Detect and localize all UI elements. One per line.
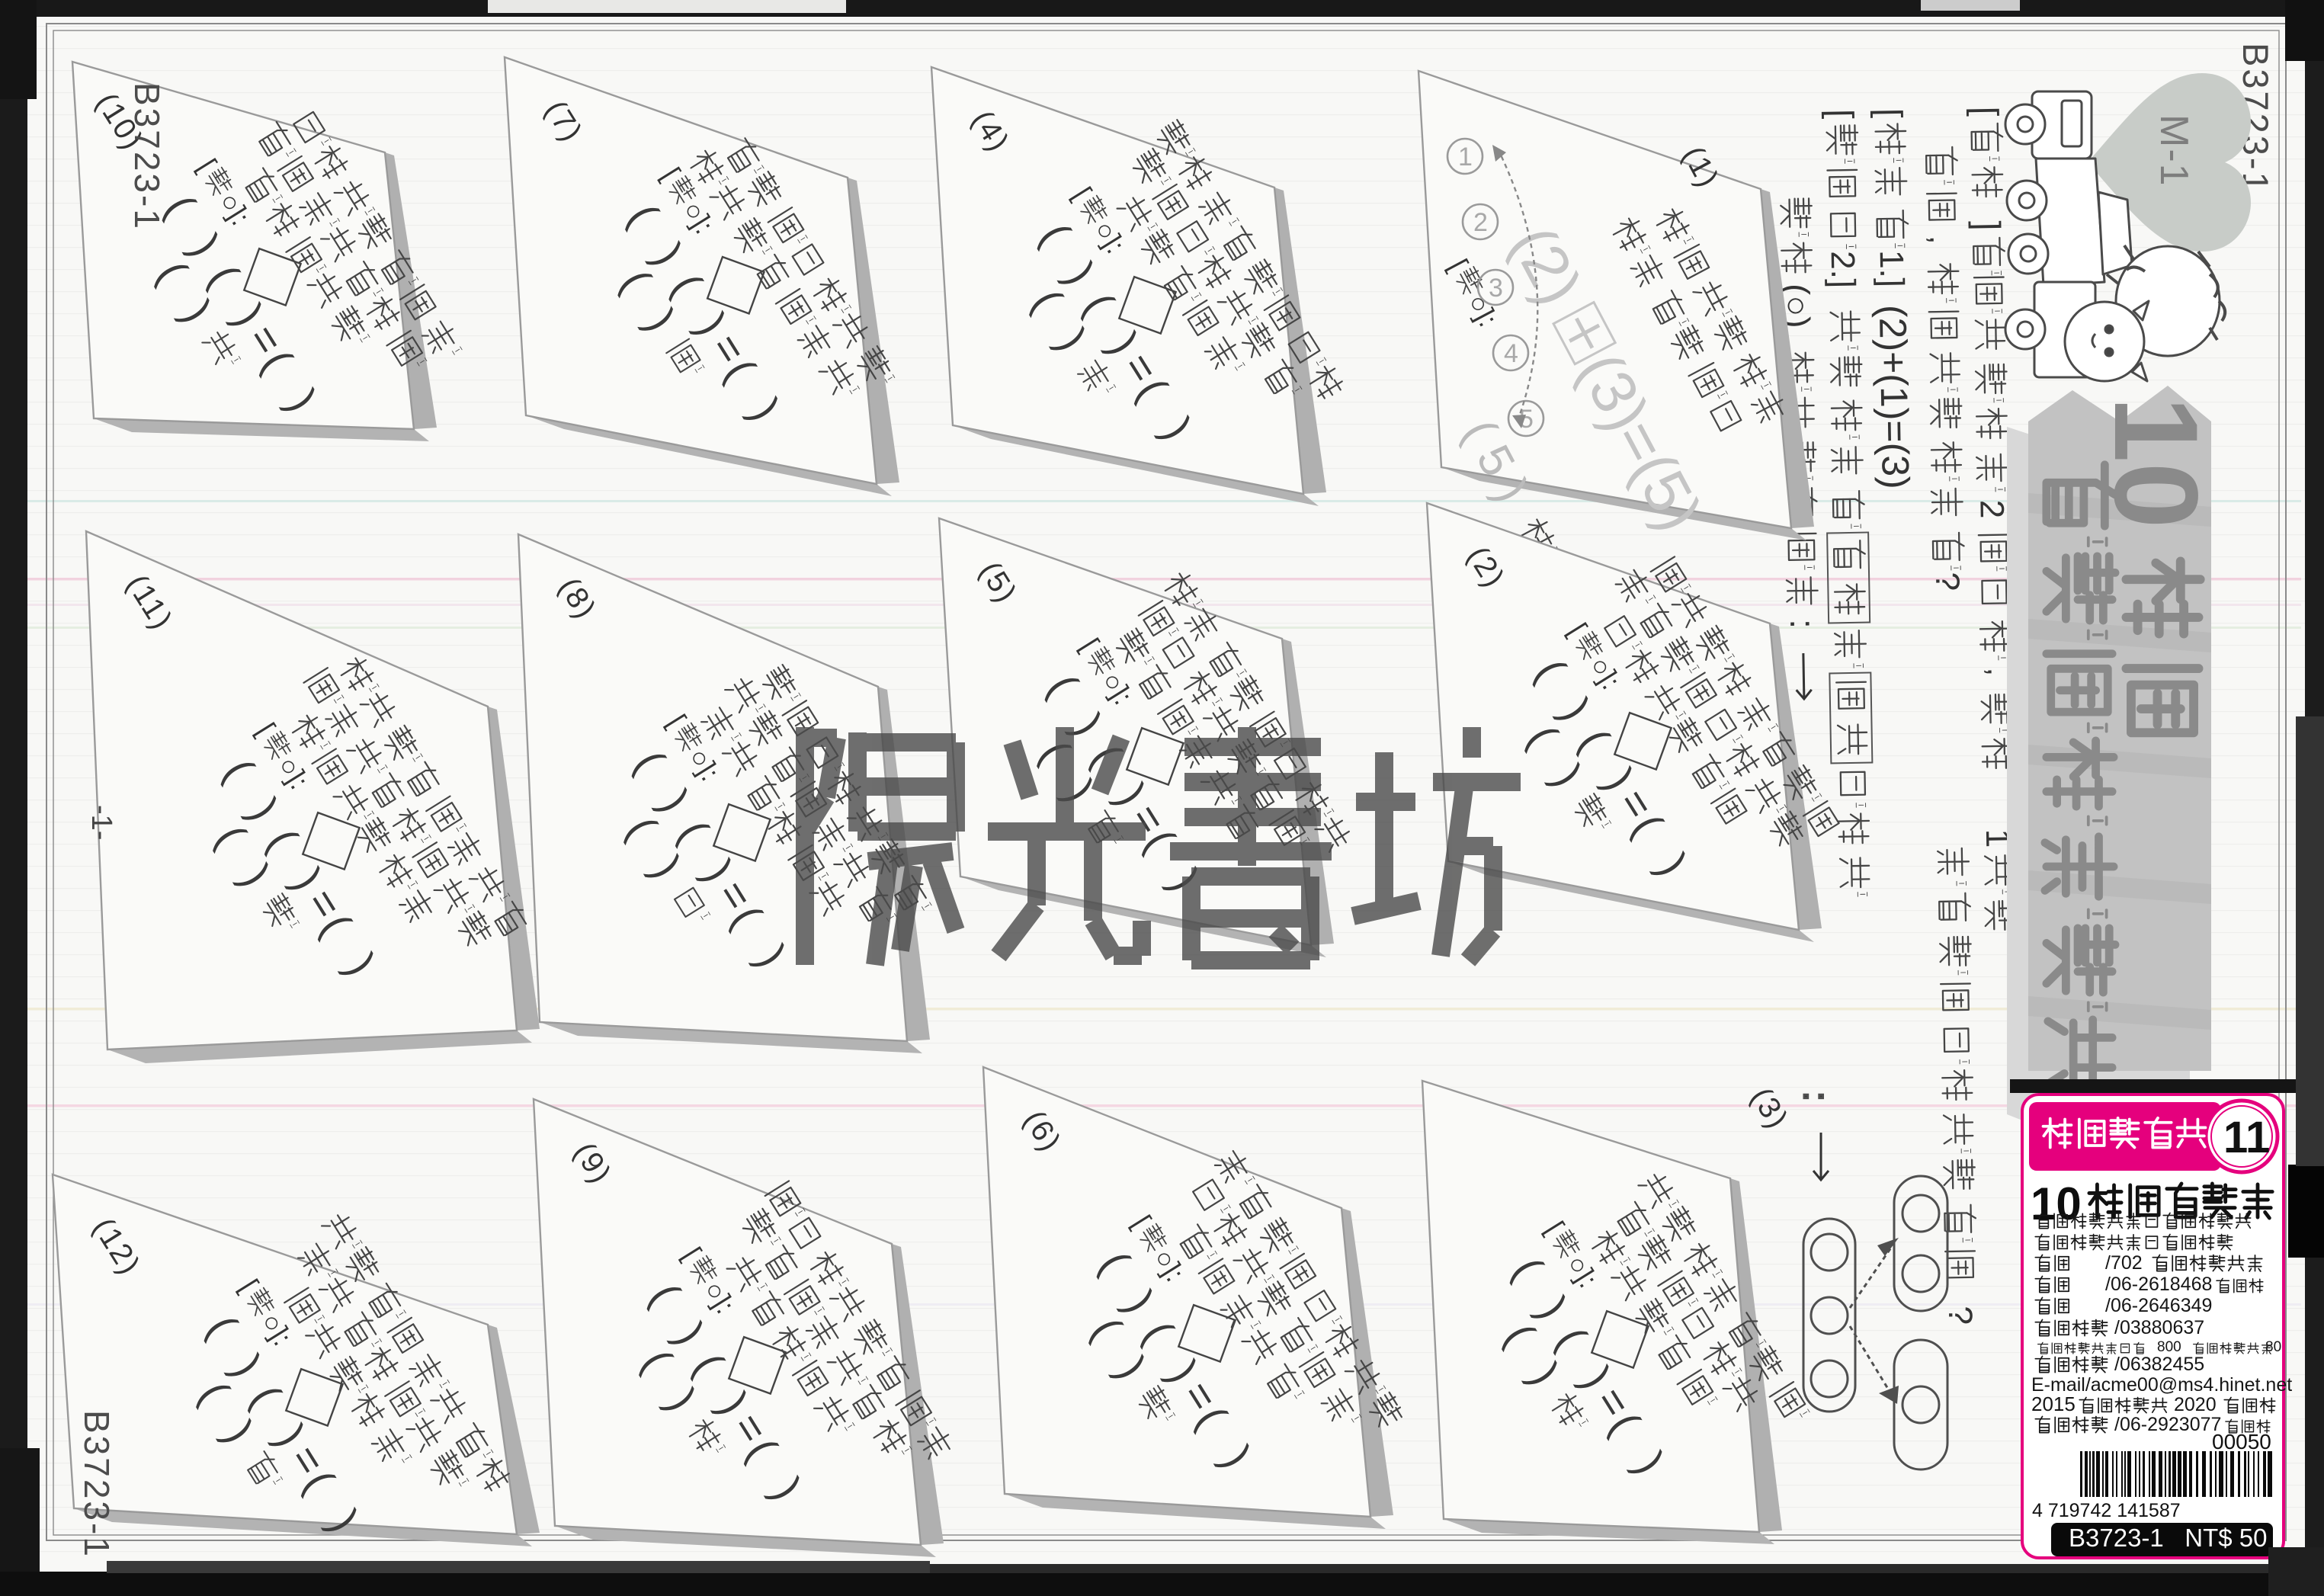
svg-text:M-1: M-1 — [2152, 114, 2196, 187]
svg-text:1: 1 — [1458, 143, 1473, 171]
svg-text:B3723-1: B3723-1 — [127, 82, 167, 231]
svg-text:80: 80 — [2265, 1339, 2281, 1355]
svg-text:2015: 2015 — [2031, 1392, 2076, 1415]
svg-text::: : — [1797, 1091, 1836, 1101]
svg-text:[: [ — [1821, 109, 1861, 120]
svg-text:2020: 2020 — [2174, 1394, 2217, 1415]
svg-text:4: 4 — [1504, 339, 1518, 368]
svg-text:2: 2 — [1973, 499, 2010, 518]
svg-text:[: [ — [1966, 106, 2005, 117]
svg-text:[: [ — [1870, 108, 1909, 119]
svg-text:/06-2618468: /06-2618468 — [2105, 1274, 2212, 1295]
svg-text:800: 800 — [2157, 1339, 2181, 1355]
svg-text:2.]: 2.] — [1824, 251, 1862, 289]
svg-text:10: 10 — [2031, 1178, 2082, 1229]
svg-text::: : — [1783, 619, 1822, 630]
svg-text:/06382455: /06382455 — [2114, 1354, 2204, 1375]
svg-text:(2)+(1)=(3): (2)+(1)=(3) — [1871, 304, 1917, 489]
svg-text:11: 11 — [2223, 1113, 2270, 1162]
svg-text:10: 10 — [2089, 396, 2222, 529]
svg-text:,: , — [1923, 235, 1957, 244]
svg-text:/06-2646349: /06-2646349 — [2105, 1295, 2212, 1316]
svg-text:/06-2923077: /06-2923077 — [2114, 1414, 2221, 1435]
svg-text:4 719742 141587: 4 719742 141587 — [2032, 1500, 2181, 1521]
svg-text:/03880637: /03880637 — [2114, 1317, 2204, 1338]
svg-text:3: 3 — [1489, 274, 1503, 303]
svg-text:/702: /702 — [2105, 1252, 2143, 1274]
svg-text:?: ? — [1941, 1306, 1979, 1325]
svg-text:-1-: -1- — [85, 805, 117, 840]
svg-text:?: ? — [1928, 572, 1966, 591]
svg-text:00050: 00050 — [2212, 1430, 2271, 1453]
svg-text:B3723-1 NT$ 50: B3723-1 NT$ 50 — [2069, 1524, 2268, 1552]
svg-text:B3723-1: B3723-1 — [77, 1410, 117, 1559]
svg-text:1.]: 1.] — [1873, 250, 1911, 288]
svg-text:]: ] — [1968, 220, 2008, 231]
svg-text:2: 2 — [1473, 208, 1488, 237]
